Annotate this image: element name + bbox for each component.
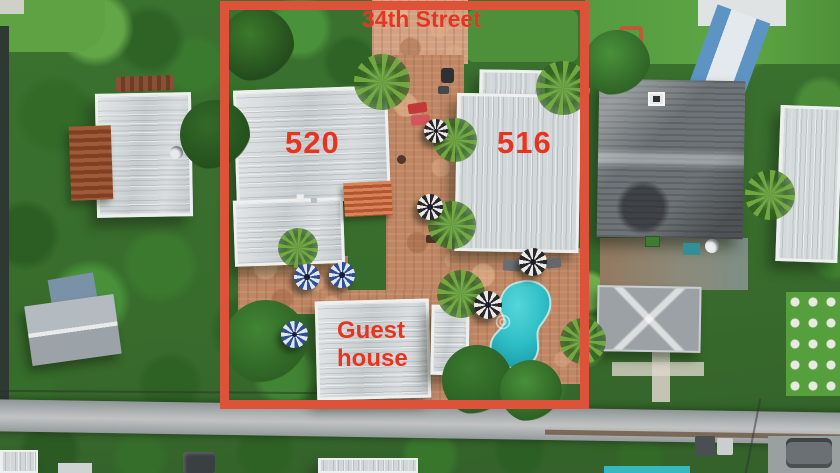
parked-suv <box>786 438 832 468</box>
left-shed-roof <box>24 294 121 366</box>
neighbor-pool-strip <box>604 466 690 473</box>
building-520-label: 520 <box>285 125 340 161</box>
building-516-label: 516 <box>497 125 552 161</box>
palm-tree-7 <box>745 170 795 220</box>
guest-house-label-line2: house <box>337 345 408 373</box>
teal-bin <box>683 243 700 255</box>
guest-house-label: Guest house <box>337 317 408 373</box>
left-neighbor-tile-roof <box>69 125 114 200</box>
tree-blob-5 <box>584 30 650 96</box>
right-neighbor-hip-roof <box>597 79 746 240</box>
aerial-photo: 34th Street 520 516 Guest house <box>0 0 840 473</box>
bottom-center-roof <box>318 458 418 473</box>
green-dumpster <box>645 236 660 247</box>
stepping-stone-garden <box>786 292 840 396</box>
left-neighbor-satellite-dish <box>170 146 183 159</box>
white-path-vertical <box>652 350 670 402</box>
street-name-label: 34th Street <box>362 6 481 33</box>
right-neighbor-patio <box>600 238 748 290</box>
bottom-left-roof <box>0 450 38 473</box>
garage-roof <box>596 285 701 353</box>
bottom-left-fence <box>58 463 92 473</box>
trash-bin-light <box>717 438 733 455</box>
alley-edge-left <box>0 26 9 406</box>
satellite-dish <box>705 239 719 253</box>
trash-bin-dark <box>695 436 715 456</box>
concrete-corner-top-left <box>0 0 24 14</box>
dark-shed-bottom <box>183 452 215 473</box>
white-path-horizontal <box>612 362 704 376</box>
chimney-flue <box>653 96 660 102</box>
rust-fence <box>116 75 174 92</box>
guest-house-label-line1: Guest <box>337 317 408 345</box>
